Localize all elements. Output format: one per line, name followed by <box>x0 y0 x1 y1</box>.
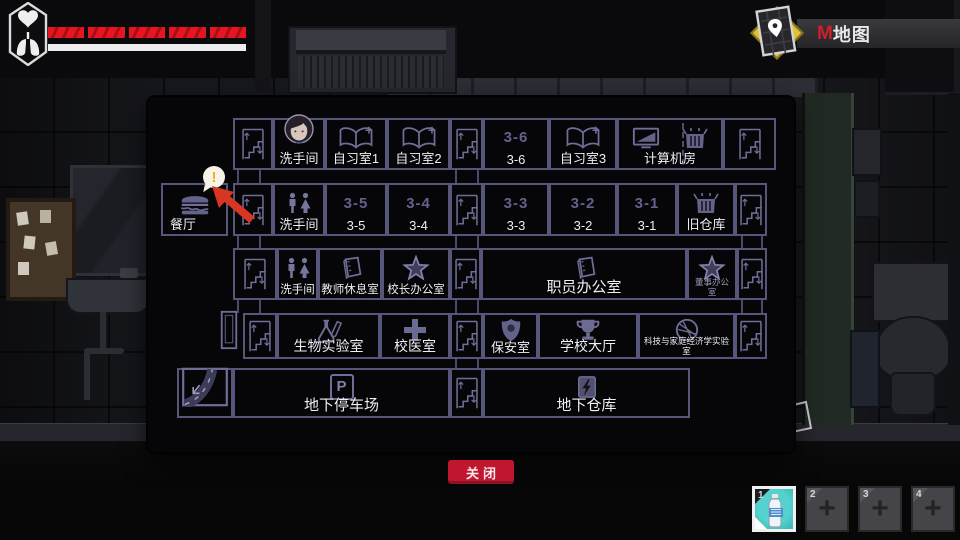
floor-connector <box>477 300 479 313</box>
health-segment <box>48 27 84 38</box>
health-segment <box>169 27 205 38</box>
storage-box-icon <box>682 126 708 150</box>
cell-icon-area <box>452 251 479 297</box>
cell-icon-area <box>216 315 241 344</box>
ac-unit-fins <box>298 56 444 88</box>
board-note <box>45 241 58 256</box>
room-label: 生物实验室 <box>279 336 378 356</box>
cell-icon-area <box>452 121 481 167</box>
map-room: 科技与家庭经济学实验室 <box>638 313 735 359</box>
room-number: 3-6 <box>504 129 529 146</box>
map-room: 自习室2 <box>387 118 450 170</box>
stairs-icon <box>454 125 480 163</box>
room-label: 3-3 <box>485 218 547 233</box>
room-label: 教师休息室 <box>320 281 380 297</box>
floor-connector <box>455 236 457 248</box>
background-wall-edge <box>948 93 960 425</box>
map-room: 3-63-6 <box>483 118 549 170</box>
map-stairs <box>735 183 767 236</box>
study-book-icon <box>564 125 602 151</box>
cell-icon-area <box>279 252 316 283</box>
map-room: P地下停车场 <box>233 368 450 418</box>
map-room: 职员办公室 <box>481 248 687 300</box>
map-room: 地下仓库 <box>483 368 690 418</box>
board-note <box>23 235 35 249</box>
room-label: 洗手间 <box>275 148 323 167</box>
cell-icon-area <box>235 251 275 297</box>
player-marker <box>284 114 314 149</box>
map-stairs <box>450 183 483 236</box>
cell-icon-area: 3-5 <box>327 187 385 219</box>
floor-connector <box>237 170 239 183</box>
stairs-icon <box>453 255 479 293</box>
map-toggle-label: 地图 <box>833 21 871 47</box>
cell-icon-area <box>235 121 271 167</box>
map-room: 3-43-4 <box>387 183 450 236</box>
health-bar <box>48 27 246 38</box>
sink-pipe <box>84 348 124 354</box>
map-room: 教师休息室 <box>318 248 382 300</box>
stairs-icon <box>247 317 273 355</box>
cell-icon-area <box>245 316 275 356</box>
cell-icon-area: 3-2 <box>551 187 615 219</box>
water-bottle-icon <box>765 494 785 528</box>
selected-marker <box>755 517 767 529</box>
room-number: 3-4 <box>406 195 431 212</box>
map-room: 自习室1 <box>325 118 387 170</box>
slot-number: 2 <box>810 489 816 500</box>
floor-connector <box>259 170 261 183</box>
inventory-slot-2[interactable]: 2+ <box>805 486 849 532</box>
sink-faucet <box>120 268 138 278</box>
slot-number: 4 <box>916 489 922 500</box>
cell-icon-area <box>739 251 765 297</box>
map-stairs <box>737 248 767 300</box>
toilet-tank <box>872 262 954 322</box>
map-stairs <box>243 313 277 359</box>
map-room: 3-33-3 <box>483 183 549 236</box>
room-label: 校长办公室 <box>384 281 448 297</box>
map-room: 保安室 <box>483 313 538 359</box>
room-label: 3-2 <box>551 218 615 233</box>
map-stairs <box>723 118 776 170</box>
trash-bin <box>850 330 880 408</box>
cell-icon-area <box>384 252 448 283</box>
room-label: 保安室 <box>485 337 536 356</box>
map-stairs <box>233 248 277 300</box>
cell-icon-area: 3-1 <box>619 187 675 219</box>
map-stairs <box>450 313 483 359</box>
map-stairs <box>450 248 481 300</box>
health-segment <box>210 27 246 38</box>
stall-door <box>802 93 854 425</box>
game-screen: M 地图 洗手间 自习室1 自习室2 3-63-6 自习室3 <box>0 0 960 540</box>
board-note <box>18 262 29 275</box>
map-room: 生物实验室 <box>277 313 380 359</box>
room-number: 3-2 <box>571 195 596 212</box>
map-panel: 洗手间 自习室1 自习室2 3-63-6 自习室3 计算机房 餐厅 洗手间3-5… <box>148 97 794 452</box>
wall-dispenser <box>852 128 882 176</box>
room-label: 科技与家庭经济学实验室 <box>640 337 733 356</box>
stairs-icon <box>240 125 266 163</box>
floor-connector <box>761 236 763 248</box>
room-label: 3-5 <box>327 218 385 233</box>
map-room: 洗手间 <box>277 248 318 300</box>
map-room: 洗手间 <box>273 183 325 236</box>
map-toggle-button[interactable]: M 地图 <box>797 19 960 48</box>
storage-box-icon <box>693 191 719 215</box>
map-stairs <box>450 118 483 170</box>
notebook-icon <box>337 255 363 281</box>
cell-icon-area: 3-4 <box>389 187 448 219</box>
stairs-icon <box>454 374 480 412</box>
map-room: 董事办公室 <box>687 248 737 300</box>
room-label: 旧仓库 <box>679 214 733 233</box>
sink-pipe <box>100 312 106 352</box>
sink-pipe <box>84 352 90 400</box>
health-segment <box>88 27 124 38</box>
room-label: 地下仓库 <box>485 394 688 415</box>
cell-icon-area <box>452 371 481 415</box>
inventory-slot-3[interactable]: 3+ <box>858 486 902 532</box>
cell-icon-area <box>452 316 481 356</box>
room-label: 董事办公室 <box>689 278 735 297</box>
floor-connector <box>477 170 479 183</box>
map-room <box>177 368 233 418</box>
cell-icon-area: 3-6 <box>485 122 547 153</box>
slot-number: 1 <box>758 490 764 501</box>
inventory-bar: 1 2+3+4+ <box>752 486 955 532</box>
floor-connector <box>259 236 261 248</box>
map-room: 校长办公室 <box>382 248 450 300</box>
room-label: 3-1 <box>619 218 675 233</box>
floor-connector <box>761 300 763 313</box>
floor-connector <box>477 236 479 248</box>
cell-icon-area <box>320 252 380 283</box>
stairs-icon <box>242 255 268 293</box>
floor-connector <box>259 300 261 313</box>
room-label: 自习室2 <box>389 148 448 167</box>
computer-monitor-icon <box>632 126 660 150</box>
floor-connector <box>237 236 239 248</box>
room-label: 学校大厅 <box>540 336 636 356</box>
room-label: 自习室3 <box>551 148 615 167</box>
restroom-figures-icon <box>284 257 312 279</box>
stairs-icon <box>454 191 480 229</box>
heart-lungs-icon <box>8 2 48 66</box>
background-beam <box>255 0 271 92</box>
toilet-base <box>890 372 936 416</box>
map-room: 洗手间 <box>273 118 325 170</box>
map-room: 学校大厅 <box>538 313 638 359</box>
floor-connector <box>455 170 457 183</box>
inventory-slot-1[interactable]: 1 <box>752 486 796 532</box>
map-room: 自习室3 <box>549 118 617 170</box>
map-room: 3-23-2 <box>549 183 617 236</box>
cell-icon-area <box>737 316 765 356</box>
map-stairs <box>450 368 483 418</box>
room-number: 3-5 <box>344 195 369 212</box>
floor-connector <box>477 359 479 368</box>
slot-number: 3 <box>863 489 869 500</box>
stairs-icon <box>738 317 764 355</box>
stairs-icon <box>454 317 480 355</box>
room-label: 自习室1 <box>327 148 385 167</box>
room-label: 洗手间 <box>279 281 316 297</box>
restroom-figures-icon <box>285 192 313 214</box>
study-book-icon <box>400 125 438 151</box>
map-room: 3-13-1 <box>617 183 677 236</box>
stairs-icon <box>738 191 764 229</box>
map-hotkey-label: M <box>817 23 833 45</box>
health-segment <box>129 27 165 38</box>
room-label: 计算机房 <box>619 148 721 167</box>
map-stairs <box>735 313 767 359</box>
room-label: 3-6 <box>485 152 547 167</box>
star-icon <box>402 255 430 281</box>
floor-connector <box>741 300 743 313</box>
room-label: 洗手间 <box>275 214 323 233</box>
stairs-icon <box>739 255 765 293</box>
study-book-icon <box>337 125 375 151</box>
cell-icon-area: 3-3 <box>485 187 547 219</box>
map-paper-icon <box>755 5 797 59</box>
floor-connector <box>741 236 743 248</box>
bathroom-sink <box>66 278 150 314</box>
floor-connector <box>455 300 457 313</box>
cell-icon-area <box>737 186 765 233</box>
bathroom-mirror <box>70 165 151 276</box>
map-icon <box>744 2 806 60</box>
map-room: 3-53-5 <box>325 183 387 236</box>
floor-connector <box>455 359 457 368</box>
room-number: 3-3 <box>504 195 529 212</box>
stamina-bar <box>48 44 246 51</box>
alert-arrow-icon <box>206 183 258 223</box>
cell-icon-area <box>725 121 774 167</box>
board-note <box>16 211 29 225</box>
map-room: 计算机房 <box>617 118 723 170</box>
player-avatar-icon <box>284 114 314 144</box>
map-stairs <box>233 118 273 170</box>
room-label: 地下停车场 <box>235 394 448 415</box>
cell-icon-area <box>452 186 481 233</box>
stairs-icon <box>737 125 763 163</box>
map-door <box>216 313 241 359</box>
room-label: 职员办公室 <box>483 276 685 297</box>
floor-connector <box>237 300 239 313</box>
map-room: 校医室 <box>380 313 450 359</box>
map-room: 旧仓库 <box>677 183 735 236</box>
board-note <box>40 210 51 223</box>
door-icon <box>219 310 239 350</box>
close-button[interactable]: 关闭 <box>448 460 514 484</box>
exit-road-icon <box>181 367 229 407</box>
ac-unit-grill <box>296 30 446 54</box>
room-number: 3-1 <box>635 195 660 212</box>
cell-icon-area <box>179 372 231 401</box>
room-label: 校医室 <box>382 336 448 356</box>
wall-dispenser <box>854 180 880 218</box>
room-label: 3-4 <box>389 218 448 233</box>
inventory-slot-4[interactable]: 4+ <box>911 486 955 532</box>
